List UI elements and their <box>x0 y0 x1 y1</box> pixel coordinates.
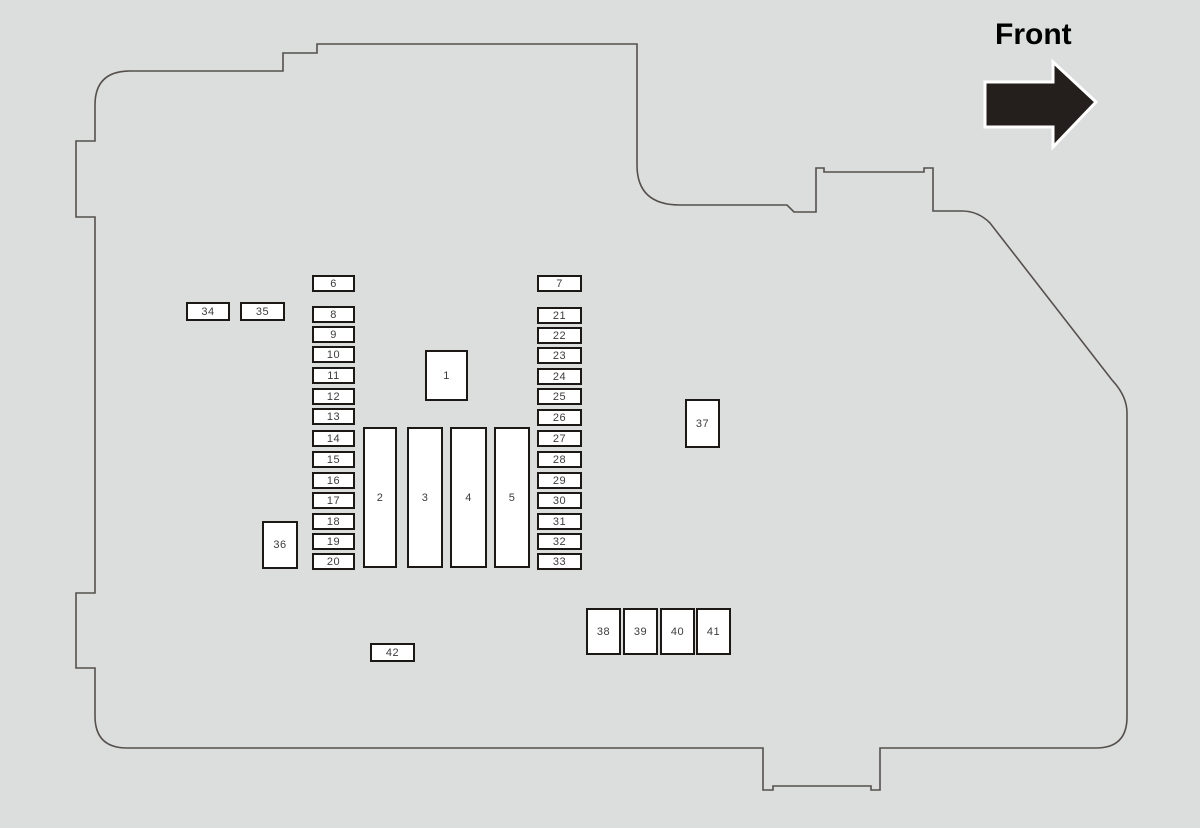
fuse-label: 14 <box>327 433 340 445</box>
fuse-33: 33 <box>537 553 582 570</box>
fuse-label: 19 <box>327 536 340 548</box>
fuse-label: 9 <box>330 329 337 341</box>
fuse-23: 23 <box>537 347 582 364</box>
fuse-3: 3 <box>407 427 443 568</box>
fuse-label: 6 <box>330 278 337 290</box>
fuse-29: 29 <box>537 472 582 489</box>
fuse-32: 32 <box>537 533 582 550</box>
fuse-39: 39 <box>623 608 658 655</box>
fuse-11: 11 <box>312 367 355 384</box>
fuse-label: 5 <box>509 492 516 504</box>
fuse-label: 33 <box>553 556 566 568</box>
fuse-22: 22 <box>537 327 582 344</box>
fuse-label: 31 <box>553 516 566 528</box>
fuse-label: 20 <box>327 556 340 568</box>
fuse-18: 18 <box>312 513 355 530</box>
fuse-4: 4 <box>450 427 487 568</box>
fuse-5: 5 <box>494 427 530 568</box>
fuse-label: 29 <box>553 475 566 487</box>
fuse-label: 13 <box>327 411 340 423</box>
fuse-40: 40 <box>660 608 695 655</box>
fuse-13: 13 <box>312 408 355 425</box>
fuse-1: 1 <box>425 350 468 401</box>
fuse-label: 39 <box>634 626 647 638</box>
fuse-label: 30 <box>553 495 566 507</box>
fuse-14: 14 <box>312 430 355 447</box>
fuse-38: 38 <box>586 608 621 655</box>
fuse-label: 21 <box>553 310 566 322</box>
fuse-16: 16 <box>312 472 355 489</box>
fuse-21: 21 <box>537 307 582 324</box>
fuse-label: 34 <box>201 306 214 318</box>
fuse-9: 9 <box>312 326 355 343</box>
fuse-label: 10 <box>327 349 340 361</box>
fuse-label: 35 <box>256 306 269 318</box>
fuse-label: 4 <box>465 492 472 504</box>
fuse-label: 15 <box>327 454 340 466</box>
fuse-label: 25 <box>553 391 566 403</box>
fuse-label: 7 <box>556 278 563 290</box>
fuse-label: 17 <box>327 495 340 507</box>
fuse-37: 37 <box>685 399 720 448</box>
fuse-label: 41 <box>707 626 720 638</box>
fuse-12: 12 <box>312 388 355 405</box>
fuse-label: 16 <box>327 475 340 487</box>
fuse-label: 22 <box>553 330 566 342</box>
fuse-20: 20 <box>312 553 355 570</box>
fuse-label: 24 <box>553 371 566 383</box>
fuse-label: 36 <box>273 539 286 551</box>
fuse-36: 36 <box>262 521 298 569</box>
fuse-label: 27 <box>553 433 566 445</box>
fuse-label: 38 <box>597 626 610 638</box>
fuse-28: 28 <box>537 451 582 468</box>
fuse-label: 11 <box>327 370 339 382</box>
fuse-42: 42 <box>370 643 415 662</box>
fuse-label: 3 <box>422 492 429 504</box>
fuse-label: 12 <box>327 391 340 403</box>
fuse-label: 28 <box>553 454 566 466</box>
fuse-label: 37 <box>696 418 709 430</box>
fuse-26: 26 <box>537 409 582 426</box>
fuse-2: 2 <box>363 427 397 568</box>
fuse-30: 30 <box>537 492 582 509</box>
fuse-label: 2 <box>377 492 384 504</box>
fuse-box-diagram: 1234567891011121314151617181920212223242… <box>0 0 1200 828</box>
fuse-15: 15 <box>312 451 355 468</box>
fuse-label: 18 <box>327 516 340 528</box>
fuse-27: 27 <box>537 430 582 447</box>
fuse-label: 1 <box>443 370 450 382</box>
fuse-17: 17 <box>312 492 355 509</box>
fuse-25: 25 <box>537 388 582 405</box>
fuse-10: 10 <box>312 346 355 363</box>
fuse-35: 35 <box>240 302 285 321</box>
fuse-7: 7 <box>537 275 582 292</box>
fuse-label: 26 <box>553 412 566 424</box>
fuse-8: 8 <box>312 306 355 323</box>
fuse-19: 19 <box>312 533 355 550</box>
fuse-6: 6 <box>312 275 355 292</box>
fuse-34: 34 <box>186 302 230 321</box>
fuse-label: 8 <box>330 309 337 321</box>
enclosure-outline-path <box>76 44 1127 790</box>
fuse-label: 42 <box>386 647 399 659</box>
front-direction-label: Front <box>995 18 1105 52</box>
front-arrow-icon <box>980 55 1110 160</box>
fuse-24: 24 <box>537 368 582 385</box>
fuse-41: 41 <box>696 608 731 655</box>
fuse-label: 23 <box>553 350 566 362</box>
fuse-label: 32 <box>553 536 566 548</box>
fuse-31: 31 <box>537 513 582 530</box>
fuse-label: 40 <box>671 626 684 638</box>
